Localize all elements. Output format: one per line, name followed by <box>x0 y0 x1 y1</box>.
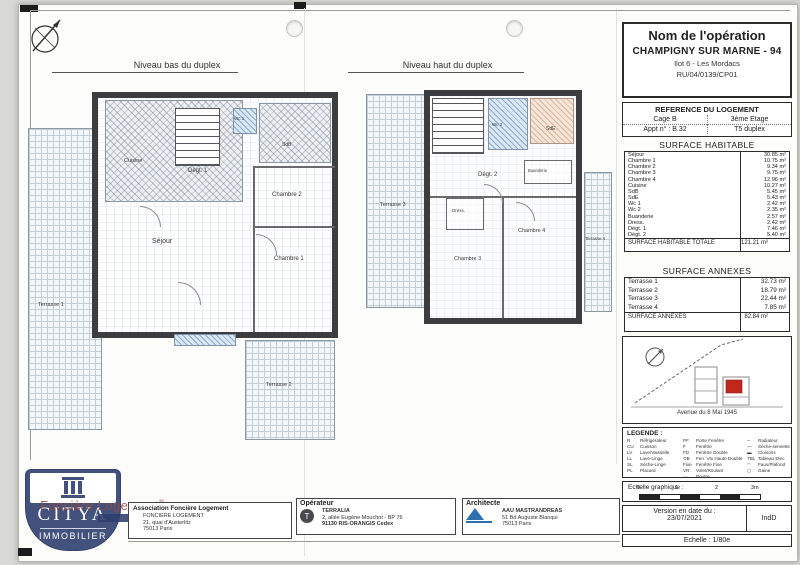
staircase <box>432 98 484 154</box>
sdb-area <box>259 103 331 163</box>
compass-rose-icon <box>24 14 68 58</box>
room-label-wc2: Wc 2 <box>492 122 502 127</box>
surface-habitable-title: SURFACE HABITABLE <box>622 140 792 150</box>
operation-box: Nom de l'opération CHAMPIGNY SUR MARNE -… <box>622 22 792 98</box>
architecte-box: Architecte AAU MASTRANDREAS 51 Bd August… <box>462 498 620 535</box>
architecte-title: Architecte <box>466 500 619 507</box>
staircase <box>175 108 220 166</box>
version-date: 23/07/2021 <box>623 515 746 522</box>
room-label-wc1: Wc 1 <box>234 116 244 121</box>
wall <box>576 90 582 324</box>
bottom-rule <box>128 541 620 542</box>
frame-line-top <box>30 10 790 11</box>
table-row: Terrasse 218.79 m² <box>625 287 789 296</box>
operation-name: CHAMPIGNY SUR MARNE - 94 <box>624 46 790 57</box>
graphic-scale-title: Echelle graphique : <box>628 484 791 491</box>
legend-column-1: RRéfrigérateur CUCuisson LVLave/Vaissell… <box>627 438 681 474</box>
partition <box>253 166 255 332</box>
wall <box>424 90 582 96</box>
room-label-sde: SdE <box>546 126 555 132</box>
version-index: IndD <box>746 506 791 531</box>
terrace-2-area <box>245 340 335 440</box>
room-label-degt1: Dégt. 1 <box>188 168 207 174</box>
legend-title: LEGENDE : <box>627 430 791 437</box>
room-label-chambre3: Chambre 3 <box>454 256 481 262</box>
lower-floor-plan: Terrasse 1 Terrasse 2 Cuisine Dégt. 1 Wc… <box>28 86 340 446</box>
echelle-box: Echelle : 1/80e <box>622 534 792 547</box>
reference-title: REFERENCE DU LOGEMENT <box>623 105 791 114</box>
situation-map <box>623 337 791 409</box>
table-row: Terrasse 132.73 m² <box>625 278 789 287</box>
wc1-area <box>233 108 257 134</box>
wall <box>424 90 430 324</box>
room-label-terrasse4: Terrasse 4 <box>585 236 605 241</box>
architecte-name: AAU MASTRANDREAS <box>502 508 562 515</box>
room-label-terrasse1: Terrasse 1 <box>38 302 64 308</box>
table-row: Terrasse 322.44 m² <box>625 295 789 304</box>
architect-triangle-logo <box>466 508 492 523</box>
reference-box: REFERENCE DU LOGEMENT Cage B 3ème Etage … <box>622 102 792 137</box>
highlighted-unit <box>726 380 742 393</box>
wall <box>92 92 98 338</box>
upper-plan-title: Niveau haut du duplex <box>385 60 510 70</box>
surface-habitable-table: Séjour30.85 m² Chambre 110.75 m² Chambre… <box>624 151 790 252</box>
operation-title: Nom de l'opération <box>624 28 790 43</box>
title-underline <box>348 72 524 73</box>
partition <box>255 226 335 228</box>
reference-type: T5 duplex <box>707 125 791 134</box>
legend-box: LEGENDE : RRéfrigérateur CUCuisson LVLav… <box>622 427 792 478</box>
room-label-terrasse2: Terrasse 2 <box>266 382 292 388</box>
title-underline <box>52 72 238 73</box>
entry-hatched-strip <box>174 334 236 346</box>
room-label-dress: Dress. <box>452 208 465 213</box>
version-label: Version en date du : <box>623 508 746 515</box>
terrace-1-area <box>28 128 102 430</box>
room-label-degt2: Dégt. 2 <box>478 172 497 178</box>
surface-annexes-table: Terrasse 132.73 m² Terrasse 218.79 m² Te… <box>624 277 790 332</box>
fold-crease <box>616 8 617 464</box>
operateur-box: Opérateur T TERRALIA 2, allée Eugène Mou… <box>296 498 456 535</box>
association-title: Association Foncière Logement <box>133 505 291 512</box>
room-label-sejour: Séjour <box>152 238 172 245</box>
table-row: Terrasse 47.85 m² <box>625 304 789 313</box>
citya-subname: IMMOBILIER <box>26 531 120 541</box>
reference-appt: Appt n° : B.32 <box>623 125 707 134</box>
legend-column-2: PFPorte Fenêtre FFenêtre FDFenêtre Doubl… <box>683 438 745 480</box>
room-label-chambre1: Chambre 1 <box>274 256 304 262</box>
room-label-chambre4: Chambre 4 <box>518 228 545 234</box>
partition <box>255 166 335 168</box>
version-box: Version en date du : 23/07/2021 IndD <box>622 505 792 532</box>
operation-refcode: RU/04/0139/CP01 <box>624 70 790 79</box>
terralia-logo: T <box>300 509 314 523</box>
table-total-row: SURFACE HABITABLE TOTALE121.21 m² <box>625 238 789 247</box>
operation-line2: Ilot 6 - Les Mordacs <box>624 59 790 68</box>
echelle-value: Echelle : 1/80e <box>623 535 791 546</box>
upper-floor-plan: Terrasse 3 Terrasse 4 Wc 2 SdE Dégt. 2 B… <box>366 86 614 338</box>
operateur-title: Opérateur <box>300 500 455 507</box>
room-label-buanderie: Buanderie <box>528 168 547 173</box>
table-total-row: SURFACE ANNEXES82.84 m² <box>625 312 789 321</box>
terrace-4-area <box>584 172 612 312</box>
room-label-sdb: SdB <box>282 142 291 148</box>
terrace-3-area <box>366 94 432 308</box>
legend-column-3: ~Radiateur —Sèche-serviette ▬Cloisons TB… <box>747 438 791 474</box>
graphic-scale-box: Echelle graphique : 0 1 2 3m <box>622 481 792 502</box>
room-label-chambre2: Chambre 2 <box>272 192 302 198</box>
dressing-room <box>446 198 484 230</box>
punch-hole <box>286 20 303 37</box>
sde-area <box>530 98 574 144</box>
association-box: Association Foncière Logement FONCIERE L… <box>128 502 292 539</box>
punch-hole <box>506 20 523 37</box>
partition <box>502 198 504 318</box>
wall <box>424 318 582 324</box>
street-label: Avenue du 8 Mai 1945 <box>623 410 791 416</box>
situation-map-box: Avenue du 8 Mai 1945 <box>622 336 792 424</box>
staple-mark <box>18 548 32 556</box>
reference-etage: 3ème Etage <box>707 115 791 125</box>
lower-plan-title: Niveau bas du duplex <box>112 60 242 70</box>
surface-annexes-title: SURFACE ANNEXES <box>622 266 792 276</box>
kitchen-hatched-area <box>105 100 243 202</box>
scale-bar <box>639 494 761 500</box>
wall <box>332 92 338 338</box>
room-label-terrasse3: Terrasse 3 <box>380 202 406 208</box>
scanned-floorplan-page: { "colors": {"wall": "#3d3d40", "accent_… <box>0 0 800 565</box>
reference-cage: Cage B <box>623 115 707 125</box>
room-label-cuisine: Cuisine <box>124 158 142 164</box>
wall <box>92 92 338 98</box>
